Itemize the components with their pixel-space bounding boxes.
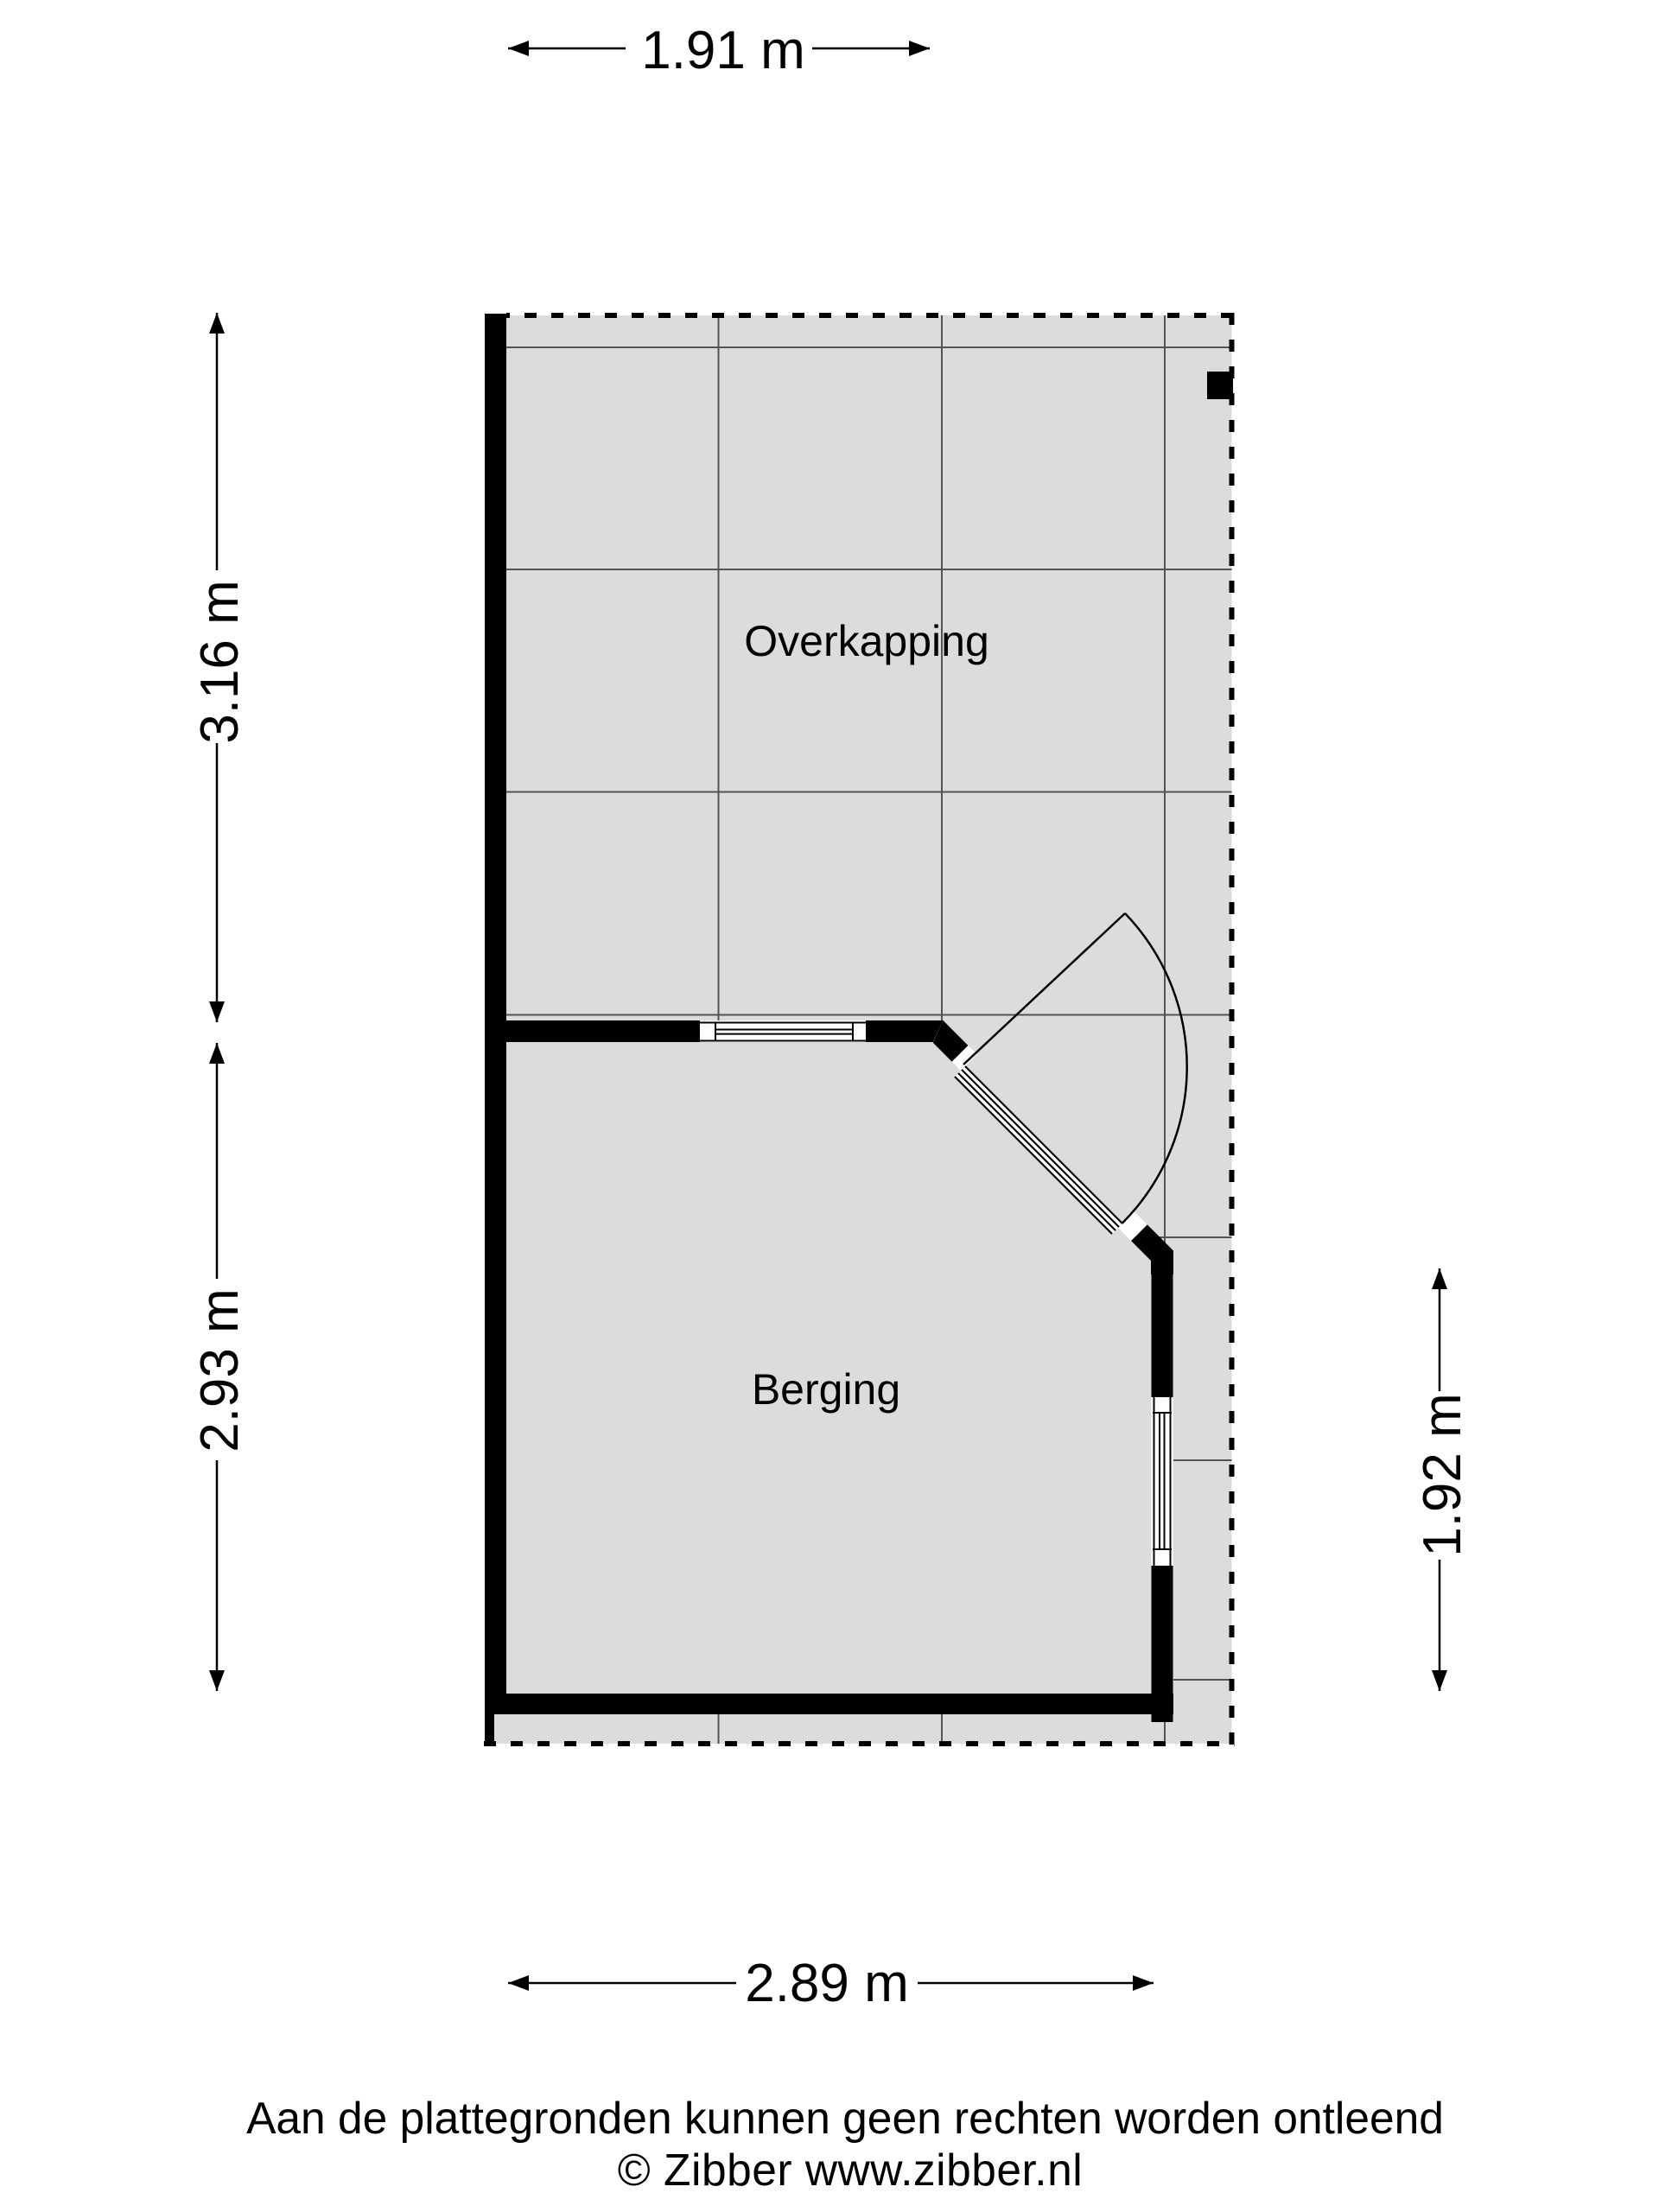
svg-text:Berging: Berging — [752, 1365, 900, 1414]
svg-text:1.91 m: 1.91 m — [641, 21, 805, 80]
svg-text:Overkapping: Overkapping — [744, 617, 989, 665]
svg-text:2.89 m: 2.89 m — [745, 1954, 909, 2013]
svg-text:2.93 m: 2.93 m — [190, 1288, 250, 1452]
svg-text:© Zibber www.zibber.nl: © Zibber www.zibber.nl — [618, 2145, 1083, 2195]
svg-text:3.16 m: 3.16 m — [190, 580, 250, 744]
svg-text:1.92 m: 1.92 m — [1413, 1393, 1472, 1557]
svg-text:Aan de plattegronden kunnen ge: Aan de plattegronden kunnen geen rechten… — [246, 2093, 1444, 2143]
